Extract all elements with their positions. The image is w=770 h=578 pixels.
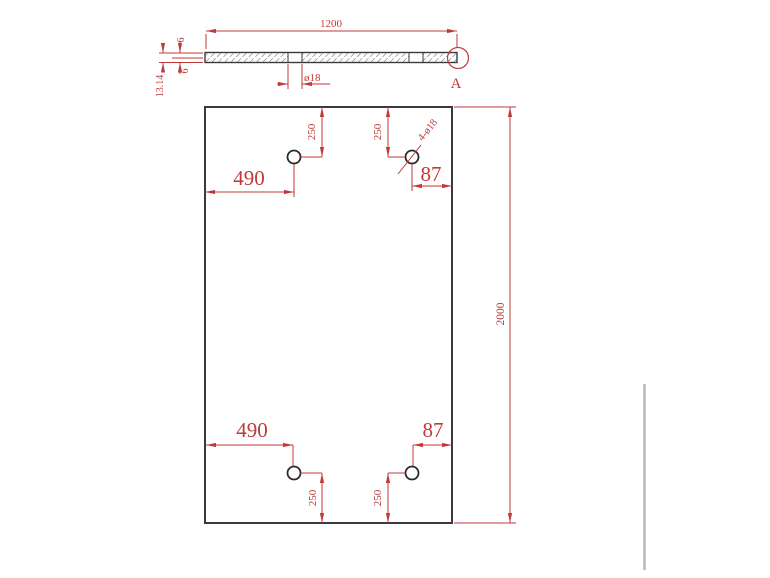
dim-section-thickness: 6 6 13.14 [155,38,203,98]
section-hole-gap-left [288,53,302,62]
dim-label-1200: 1200 [320,18,343,30]
dim-label-hole-dia: ø18 [304,72,321,84]
dim-label: 87 [421,162,442,186]
dim-label: 250 [306,123,318,140]
dim-top-left-250: 250 [301,107,323,157]
hole-bottom-left [288,467,301,480]
dim-bottom-right-250: 250 [372,473,406,523]
dim-label: 250 [307,489,319,506]
dim-label-top-skin: 6 [176,38,187,43]
dim-label-overall-thickness: 13.14 [155,75,166,98]
dim-label-bottom-skin: 6 [180,69,191,74]
hole-top-left [288,151,301,164]
dim-top-87: 87 [412,162,452,191]
dim-bottom-left-250: 250 [301,473,323,523]
section-view: 1200 6 6 13.14 ø18 A [155,18,469,97]
dim-section-hole-dia: ø18 [277,64,330,89]
technical-drawing: 1200 6 6 13.14 ø18 A [0,0,770,578]
dim-overall-height: 2000 [454,107,516,523]
dim-label: 87 [423,418,444,442]
hole-bottom-right [406,467,419,480]
dim-bottom-87: 87 [413,418,452,466]
dim-top-right-250: 250 [372,107,406,157]
detail-circle-icon [448,48,469,69]
drawing-canvas: 1200 6 6 13.14 ø18 A [0,0,770,578]
detail-marker-label: A [451,76,462,92]
dim-label: 250 [372,123,384,140]
plan-view: 250 250 490 87 4-ø18 490 [205,107,516,523]
dim-section-length: 1200 [206,18,457,49]
dim-top-490: 490 [205,164,294,197]
dim-label: 2000 [495,302,507,325]
dim-bottom-490: 490 [206,418,293,466]
hole-callout-label: 4-ø18 [416,117,440,143]
dim-label: 490 [236,418,268,442]
dim-label: 490 [233,166,265,190]
section-hole-gap-right [409,53,423,62]
dim-label: 250 [372,489,384,506]
